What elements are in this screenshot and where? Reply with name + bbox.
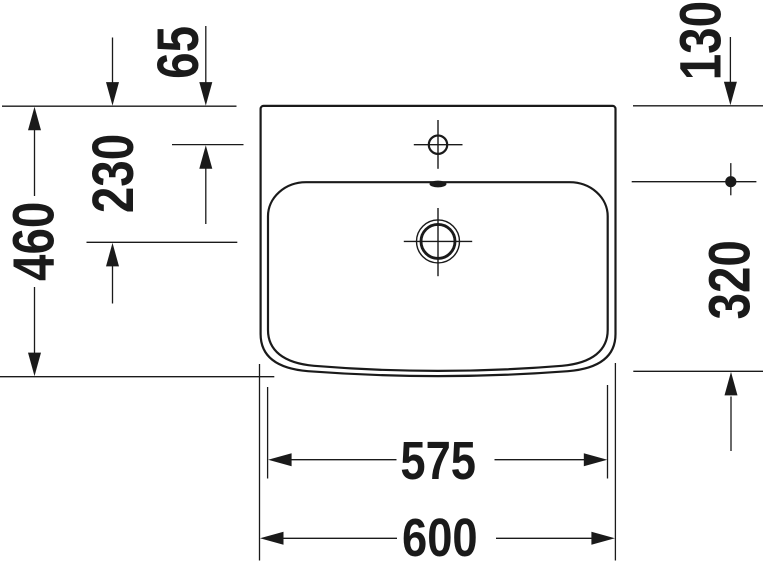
svg-text:460: 460: [2, 202, 67, 281]
svg-text:600: 600: [402, 507, 478, 567]
svg-text:320: 320: [698, 240, 763, 319]
svg-text:230: 230: [82, 134, 147, 213]
svg-text:575: 575: [400, 430, 476, 491]
svg-text:130: 130: [669, 1, 734, 80]
svg-text:65: 65: [147, 26, 212, 79]
